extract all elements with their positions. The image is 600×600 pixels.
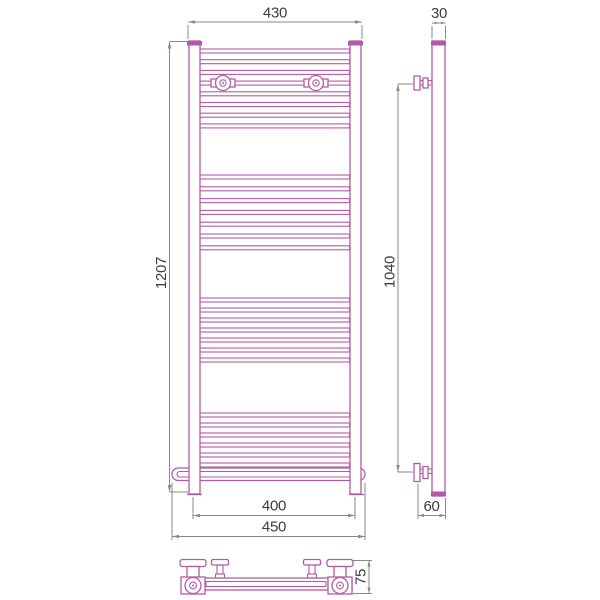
side-bracket-top [414,76,432,90]
bracket-wall-plate [414,76,420,90]
dim-width-top: 430 [188,5,362,40]
valve-center-dot [339,585,341,587]
bracket-center-dot [315,82,317,84]
bracket-center-dot [222,82,224,84]
rung [199,210,350,214]
bottom-view-tube-inner [206,582,326,587]
rung [199,318,350,322]
valve-neck [187,567,199,578]
mounting-bracket-left [211,76,235,91]
dim-depth-top: 30 [431,5,447,39]
bracket-wall-plate [414,464,420,482]
valve-left [180,560,206,595]
dim-bottom-inner-width: 400 [193,497,355,519]
side-tube-bottom-cap [431,492,446,497]
dim-label-60: 60 [423,498,439,515]
dim-label-75: 75 [353,569,370,585]
rung [199,234,350,238]
dim-mount-height: 1040 [382,84,414,472]
rung [199,175,350,179]
rung [199,453,350,457]
rung [199,328,350,332]
rung [199,124,350,128]
rung [199,413,350,417]
rung [199,308,350,312]
rung [199,298,350,302]
bottom-view [180,560,353,595]
bracket-collar [423,78,428,88]
dim-label-430: 430 [263,5,287,22]
bracket-stem [217,565,223,574]
drawing-sheet: 430 1207 400 450 [0,0,600,600]
technical-drawing-canvas: 430 1207 400 450 [0,0,600,600]
front-left-tube-cap [187,41,202,46]
bracket-cap [304,560,321,566]
rung [199,187,350,191]
rung [199,222,350,226]
dim-label-1207: 1207 [153,257,170,289]
side-tube-top-cap [431,41,446,46]
rung [199,113,350,117]
valve-neck [334,567,346,578]
bracket-cap [212,560,229,566]
rung [199,433,350,437]
side-bracket-bottom [414,464,432,482]
dim-label-30: 30 [431,5,447,22]
front-right-tube [350,41,361,494]
mounting-bracket-right [304,76,328,91]
front-right-tube-cap [348,41,363,46]
bottom-view-tube [185,578,352,590]
valve-center-dot [192,585,194,587]
rung [199,338,350,342]
valve-handle [180,560,206,567]
bottom-bracket-left [212,560,229,579]
rung [199,348,350,352]
bracket-collar [423,467,428,479]
rung [199,423,350,427]
bottom-collector-inner [177,472,360,478]
bottom-bracket-right [304,560,321,579]
bottom-collector-tube [172,468,365,481]
rung [199,60,350,64]
dim-depth-bottom: 75 [353,561,373,594]
front-left-tube [189,41,200,494]
rung [199,463,350,467]
rung [199,103,350,107]
rung [199,92,350,96]
side-view [414,41,446,496]
valve-right [327,560,353,595]
dim-label-400: 400 [262,498,286,515]
front-rungs [199,49,350,467]
rung [199,70,350,74]
bracket-stem [309,565,315,574]
dim-label-1040: 1040 [382,256,399,288]
rung [199,49,350,53]
dim-label-450: 450 [262,519,286,536]
rung [199,199,350,203]
front-view [172,41,365,495]
valve-handle [327,560,353,567]
dim-height: 1207 [153,42,188,493]
rung [199,358,350,362]
rung [199,443,350,447]
rung [199,246,350,250]
side-tube [432,41,445,496]
